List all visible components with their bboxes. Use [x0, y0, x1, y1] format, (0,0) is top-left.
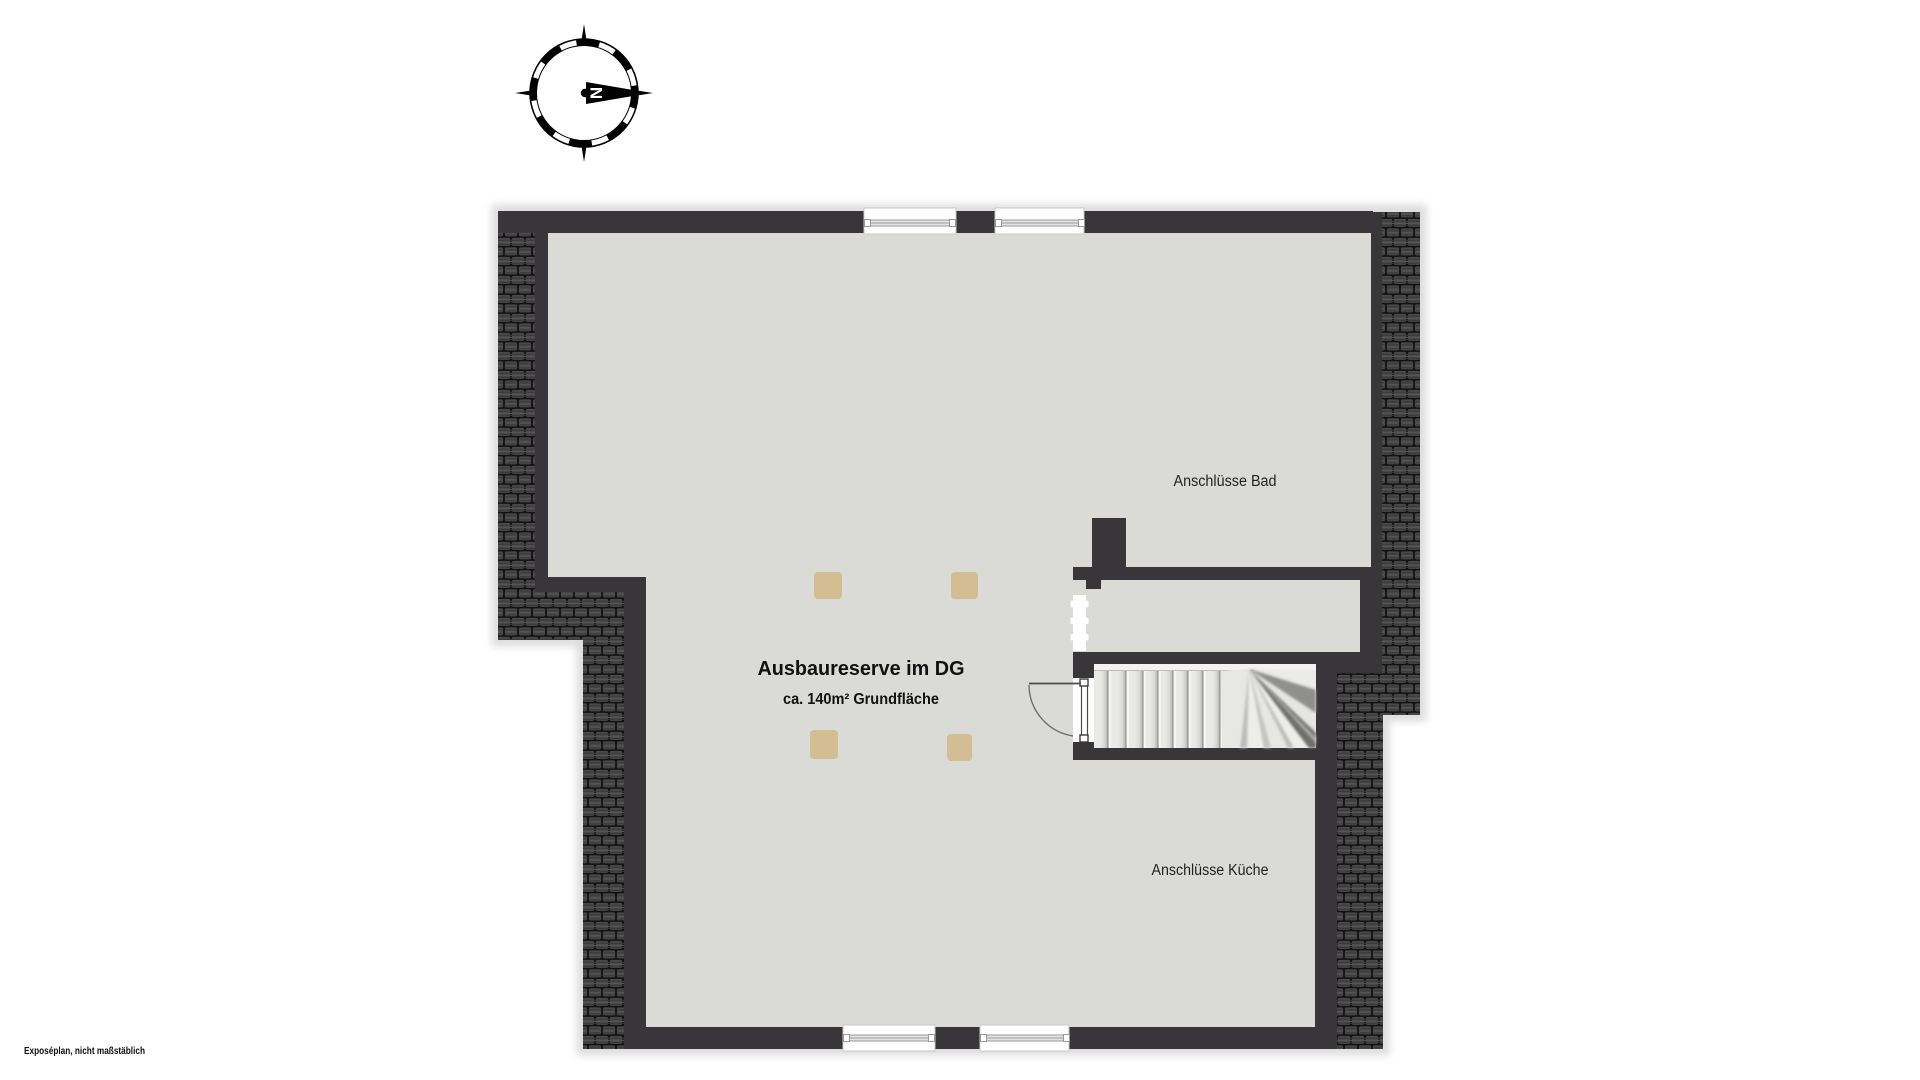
- svg-text:N: N: [587, 87, 606, 99]
- svg-text:Anschlüsse Küche: Anschlüsse Küche: [1152, 862, 1269, 879]
- svg-text:Ausbaureserve im DG: Ausbaureserve im DG: [758, 658, 965, 680]
- svg-text:Anschlüsse Bad: Anschlüsse Bad: [1174, 473, 1277, 490]
- svg-text:Exposéplan, nicht maßstäblich: Exposéplan, nicht maßstäblich: [24, 1046, 145, 1057]
- svg-text:ca. 140m² Grundfläche: ca. 140m² Grundfläche: [783, 691, 939, 708]
